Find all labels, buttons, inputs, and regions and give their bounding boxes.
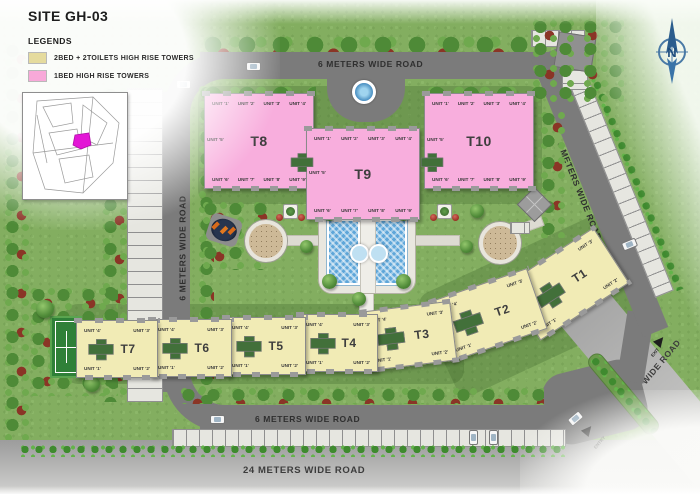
unit-label: UNIT '6' [314, 208, 331, 213]
courtyard-cross [236, 336, 261, 356]
unit-label: UNIT '3' [264, 101, 281, 106]
tower-label: T10 [466, 133, 492, 149]
key-plan-drawing [23, 93, 127, 199]
tree [396, 274, 411, 289]
bench-row [510, 222, 530, 234]
tower-T7: UNIT '4' UNIT '3' T7 UNIT '1' UNIT '2' [76, 320, 158, 378]
shrub [276, 214, 283, 221]
tower-T5: UNIT '4' UNIT '3' T5 UNIT '1' UNIT '2' [224, 317, 306, 375]
unit-label: UNIT '2' [133, 366, 150, 371]
courtyard-cross [291, 153, 313, 170]
tower-label: T6 [194, 341, 209, 355]
road-label-6m-left: 6 METERS WIDE ROAD [178, 195, 188, 300]
tower-label: T3 [414, 327, 431, 343]
tree [322, 274, 337, 289]
road-label-6m-top: 6 METERS WIDE ROAD [318, 59, 423, 69]
unit-label: UNIT '3' [484, 101, 501, 106]
shrub [430, 214, 437, 221]
tower-label: T2 [493, 301, 512, 319]
unit-label: UNIT '8' [484, 177, 501, 182]
tree [300, 240, 313, 253]
unit-label: UNIT '2' [353, 360, 370, 365]
foliage-strip [196, 30, 536, 52]
tree [460, 240, 473, 253]
unit-label: UNIT '1' [306, 360, 323, 365]
unit-label: UNIT '2' [520, 320, 537, 330]
unit-label: UNIT '2' [238, 101, 255, 106]
unit-label: UNIT '3' [506, 278, 523, 288]
unit-label: UNIT '8' [368, 208, 385, 213]
legend-swatch-2bed [28, 52, 47, 64]
unit-label: UNIT '4' [158, 327, 175, 332]
unit-label: UNIT '9' [509, 177, 526, 182]
legend-swatch-1bed [28, 70, 47, 82]
unit-label: UNIT '1' [232, 363, 249, 368]
unit-label: UNIT '3' [281, 325, 298, 330]
tower-label: T4 [341, 336, 356, 350]
unit-label: UNIT '7' [238, 177, 255, 182]
unit-label: UNIT '6' [212, 177, 229, 182]
unit-label: UNIT '1' [432, 101, 449, 106]
car-icon [210, 415, 225, 424]
gazebo-icon [283, 204, 298, 219]
unit-label: UNIT '2' [458, 101, 475, 106]
unit-label: UNIT '8' [264, 177, 281, 182]
unit-label: UNIT '6' [432, 177, 449, 182]
courtyard-cross [376, 326, 405, 350]
unit-label: UNIT '1' [212, 101, 229, 106]
legend-label: 2BED + 2TOILETS HIGH RISE TOWERS [54, 55, 194, 62]
unit-label: UNIT '4' [289, 101, 306, 106]
fountain-basin [369, 244, 388, 263]
key-plan-highlight [73, 133, 91, 149]
unit-label: UNIT '4' [395, 136, 412, 141]
unit-label: UNIT '2' [602, 277, 619, 290]
unit-label: UNIT '2' [281, 363, 298, 368]
gazebo-icon [437, 204, 452, 219]
unit-label: UNIT '2' [431, 349, 448, 356]
unit-label: UNIT '3' [577, 239, 594, 252]
tower-T8: UNIT '1' UNIT '2' UNIT '3' UNIT '4' UNIT… [204, 93, 314, 189]
car-icon [469, 430, 478, 445]
page-title: SITE GH-03 [28, 8, 194, 24]
tower-T10: UNIT '1' UNIT '2' UNIT '3' UNIT '4' UNIT… [424, 93, 534, 189]
unit-label: UNIT '9' [395, 208, 412, 213]
legend-label: 1BED HIGH RISE TOWERS [54, 73, 149, 80]
road-label-6m-bottom: 6 METERS WIDE ROAD [255, 414, 360, 424]
tower-label: T9 [354, 166, 371, 182]
road-label-24m-bottom: 24 METERS WIDE ROAD [243, 465, 365, 476]
unit-label: UNIT '3' [353, 322, 370, 327]
hedge-row-bottom [18, 443, 566, 457]
header: SITE GH-03 LEGENDS 2BED + 2TOILETS HIGH … [28, 8, 194, 82]
tree [352, 292, 366, 306]
unit-label: UNIT '3' [133, 328, 150, 333]
unit-label: UNIT '3' [368, 136, 385, 141]
unit-label: UNIT '3' [207, 327, 224, 332]
compass-n-label: N [667, 45, 676, 60]
unit-label: UNIT '5' [207, 137, 224, 142]
unit-label: UNIT '1' [158, 365, 175, 370]
tower-label: T8 [250, 133, 267, 149]
circular-plaza-left [245, 220, 287, 262]
fountain-basin [350, 244, 369, 263]
legend-item: 2BED + 2TOILETS HIGH RISE TOWERS [28, 52, 194, 64]
unit-label: UNIT '7' [458, 177, 475, 182]
unit-label: UNIT '5' [427, 137, 444, 142]
foliage-strip [176, 384, 544, 404]
tower-T4: UNIT '4' UNIT '3' T4 UNIT '1' UNIT '2' [298, 314, 378, 372]
courtyard-cross [421, 153, 443, 170]
courtyard-cross [88, 339, 113, 359]
key-plan-inset [22, 92, 128, 200]
courtyard-cross [310, 333, 335, 353]
tree [470, 204, 484, 218]
unit-label: UNIT '1' [84, 366, 101, 371]
north-compass-icon: N [652, 16, 692, 86]
courtyard-cross [162, 338, 187, 358]
courtyard-cross [451, 307, 486, 338]
round-fountain-water [355, 83, 373, 101]
car-icon [489, 430, 498, 445]
unit-label: UNIT '4' [84, 328, 101, 333]
legend-item: 1BED HIGH RISE TOWERS [28, 70, 194, 82]
site-plan-canvas: 24 METERS WIDE ROAD 24 METERS WIDE ROAD … [0, 0, 700, 494]
unit-label: UNIT '5' [309, 170, 326, 175]
unit-label: UNIT '2' [207, 365, 224, 370]
round-fountain [352, 80, 376, 104]
unit-label: UNIT '4' [306, 322, 323, 327]
foliage-cluster [528, 16, 624, 108]
tower-label: T7 [120, 342, 135, 356]
unit-label: UNIT '2' [341, 136, 358, 141]
tower-label: T1 [569, 266, 589, 286]
tower-T9: UNIT '1' UNIT '2' UNIT '3' UNIT '4' UNIT… [306, 128, 420, 220]
tower-T6: UNIT '4' UNIT '3' T6 UNIT '1' UNIT '2' [150, 319, 232, 377]
unit-label: UNIT '1' [314, 136, 331, 141]
unit-label: UNIT '3' [426, 310, 443, 317]
shrub [452, 214, 459, 221]
unit-label: UNIT '4' [509, 101, 526, 106]
unit-label: UNIT '7' [341, 208, 358, 213]
car-icon [246, 62, 261, 71]
tree [36, 300, 54, 318]
unit-label: UNIT '4' [232, 325, 249, 330]
tower-label: T5 [268, 339, 283, 353]
legend-heading: LEGENDS [28, 36, 194, 46]
